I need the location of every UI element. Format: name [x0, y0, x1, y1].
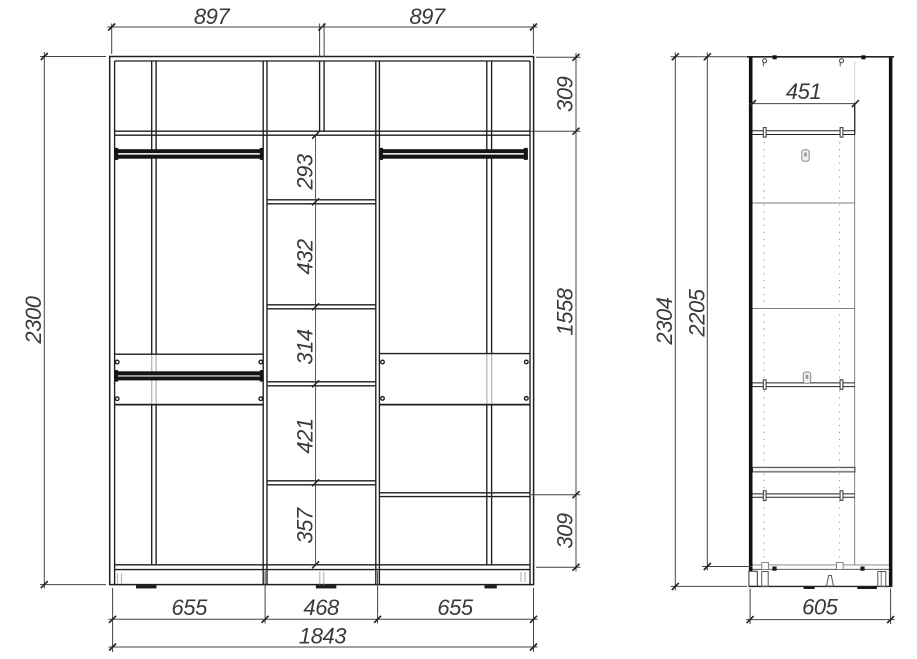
svg-text:897: 897 — [409, 4, 446, 29]
svg-text:357: 357 — [293, 507, 318, 544]
svg-text:655: 655 — [172, 595, 209, 620]
svg-text:2304: 2304 — [652, 297, 677, 345]
svg-text:655: 655 — [437, 595, 474, 620]
svg-text:2205: 2205 — [684, 288, 709, 337]
svg-text:1558: 1558 — [553, 287, 578, 335]
svg-text:309: 309 — [553, 76, 578, 112]
svg-text:309: 309 — [553, 513, 578, 549]
svg-text:897: 897 — [194, 4, 231, 29]
svg-text:432: 432 — [293, 239, 318, 275]
svg-text:605: 605 — [802, 595, 839, 620]
svg-text:314: 314 — [293, 329, 318, 365]
svg-text:293: 293 — [293, 153, 318, 191]
svg-text:468: 468 — [303, 595, 340, 620]
svg-text:421: 421 — [293, 418, 318, 453]
svg-text:451: 451 — [786, 79, 821, 104]
svg-text:1843: 1843 — [299, 623, 347, 648]
svg-text:2300: 2300 — [21, 295, 46, 344]
